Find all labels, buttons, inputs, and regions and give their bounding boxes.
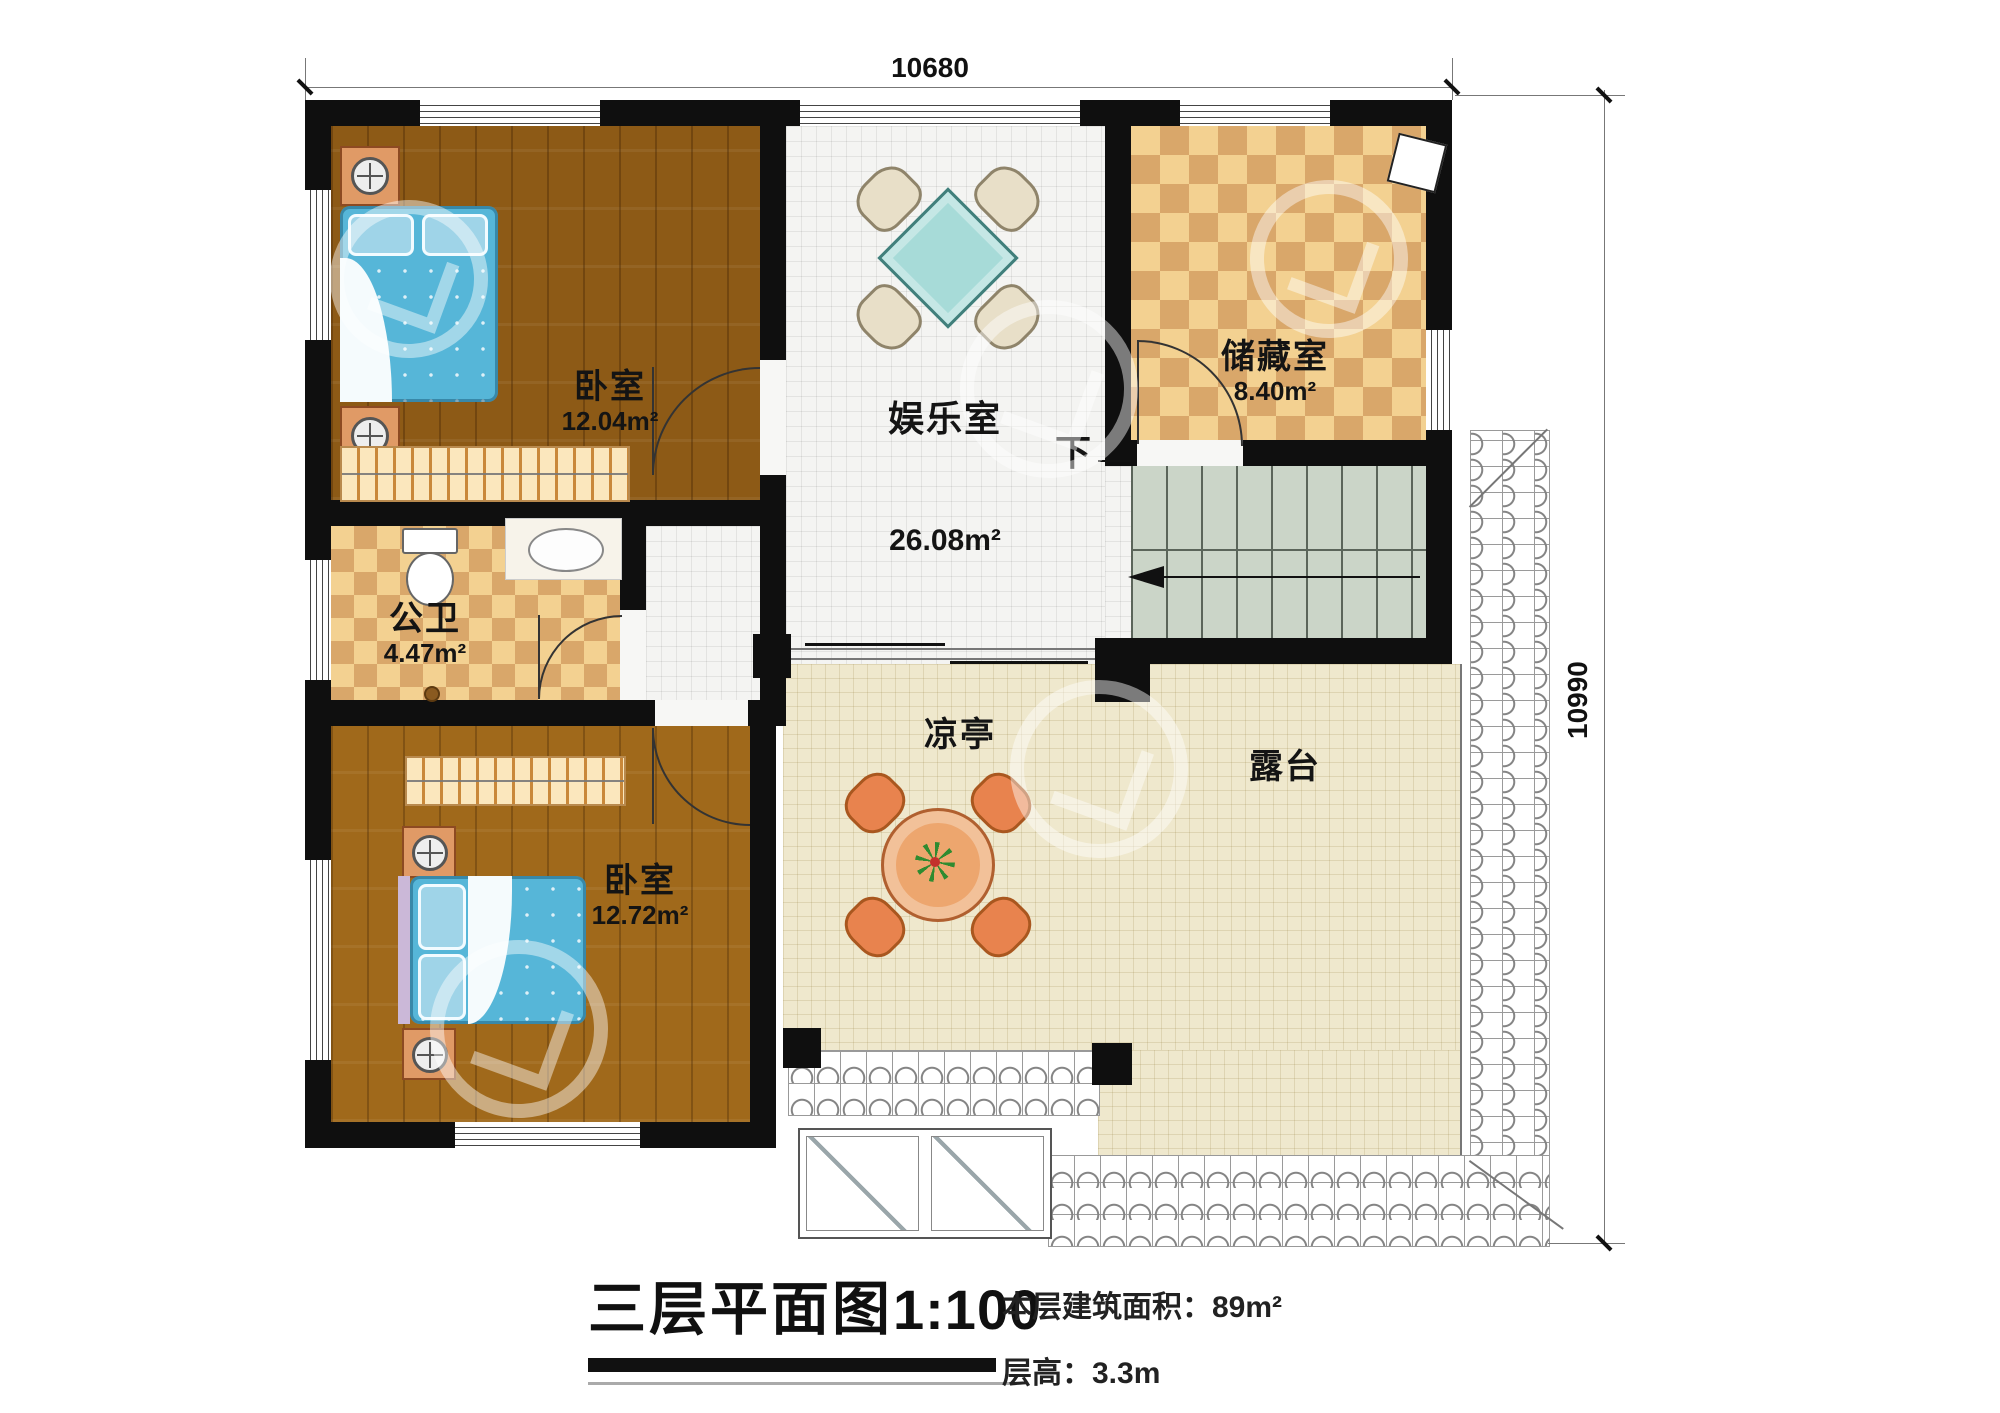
- dimension-line-right: [1604, 90, 1605, 1243]
- roof-tile-strip-pavilion: [788, 1050, 1100, 1116]
- bed-headboard: [398, 876, 410, 1024]
- window-top-bedroom: [420, 100, 600, 126]
- room-name: 露台: [1215, 748, 1355, 787]
- stairs-treads: [1131, 466, 1426, 638]
- wall-under-stairs: [1095, 638, 1452, 664]
- wall-bedroom-bottom-bottom-a: [305, 1122, 455, 1148]
- skylight-pane: [806, 1136, 919, 1231]
- room-name: 凉亭: [890, 716, 1030, 755]
- room-area: 12.72m²: [540, 901, 740, 931]
- room-label-terrace: 露台: [1215, 748, 1355, 787]
- stairs-direction-arrowhead: [1128, 566, 1164, 588]
- wardrobe: [405, 756, 626, 806]
- wall-bedroom-bottom-top-a: [305, 700, 655, 726]
- room-label-pavilion: 凉亭: [890, 716, 1030, 755]
- stairs-down-pointer: [1098, 460, 1131, 462]
- window-left-bedroom-top: [305, 190, 331, 340]
- dimension-ext: [1548, 1243, 1625, 1244]
- sliding-door-leaf: [805, 643, 945, 646]
- room-name: 储藏室: [1160, 338, 1390, 377]
- wall-bedroom-bottom-bottom-b: [640, 1122, 776, 1148]
- door-gap: [655, 700, 748, 726]
- roof-tile-band-right: [1470, 430, 1550, 1247]
- room-name: 卧室: [500, 368, 720, 407]
- room-name: 卧室: [540, 862, 740, 901]
- skylight-pane: [931, 1136, 1044, 1231]
- pillow: [418, 884, 466, 950]
- roof-tile-band-bottom: [1048, 1155, 1550, 1247]
- wall-storage-bottom-b: [1243, 440, 1452, 466]
- toilet-tank: [402, 528, 458, 554]
- exterior-sill-lines: [455, 1155, 640, 1179]
- pavilion-column-tl: [753, 634, 791, 678]
- stairs-direction-line: [1162, 576, 1420, 578]
- floor-area-text: 本层建筑面积：89m²: [1002, 1282, 1282, 1326]
- room-label-bathroom: 公卫 4.47m²: [350, 600, 500, 669]
- wardrobe: [340, 446, 630, 502]
- lamp-icon: [351, 157, 389, 195]
- dimension-ext: [1452, 58, 1453, 100]
- nightstand: [402, 826, 456, 878]
- room-label-bedroom-bottom: 卧室 12.72m²: [540, 862, 740, 931]
- pavilion-column-bl: [783, 1028, 821, 1068]
- wall-bedroom-top-right-b: [760, 475, 786, 726]
- sink: [528, 528, 604, 572]
- pavilion-column-br: [1092, 1043, 1132, 1085]
- room-name: 公卫: [350, 600, 500, 639]
- lamp-icon: [412, 835, 448, 871]
- window-top-entertainment: [800, 100, 1080, 126]
- wall-right-upper: [1426, 100, 1452, 330]
- door-gap: [760, 360, 786, 475]
- potted-plant: [915, 842, 955, 882]
- floor-drain: [424, 686, 440, 702]
- window-left-bedroom-bottom: [305, 860, 331, 1060]
- wall-bedroom-bottom-top-b: [748, 700, 786, 726]
- dimension-line-top: [305, 87, 1455, 88]
- door-leaf-bedroom-bottom: [652, 728, 654, 824]
- dimension-ext: [1455, 95, 1625, 96]
- stair-entry-floor: [1105, 466, 1131, 638]
- sliding-door-track: [791, 648, 1095, 650]
- terrace-floor-lower: [1098, 1050, 1462, 1160]
- room-area: 12.04m²: [500, 407, 720, 437]
- nightstand: [340, 146, 400, 206]
- window-left-bathroom: [305, 560, 331, 680]
- room-label-storage: 储藏室 8.40m²: [1160, 338, 1390, 407]
- room-area: 4.47m²: [350, 639, 500, 669]
- toilet-bowl: [406, 552, 454, 606]
- floor-plan: 下: [0, 0, 2000, 1413]
- drawing-title: 三层平面图1:100: [588, 1262, 1041, 1346]
- dimension-right-value: 10990: [1562, 620, 1594, 780]
- title-underline-thick: [588, 1358, 996, 1372]
- title-text: 三层平面图: [588, 1262, 893, 1346]
- dimension-top-value: 10680: [780, 52, 1080, 84]
- terrace-edge-right: [1460, 664, 1462, 1160]
- room-area: 8.40m²: [1160, 377, 1390, 407]
- room-label-entertainment-area: 26.08m²: [820, 524, 1070, 559]
- window-bedroom-bottom: [455, 1122, 640, 1148]
- wall-bathroom-right-a: [620, 526, 646, 610]
- room-area: 26.08m²: [820, 524, 1070, 559]
- sliding-door-leaf: [950, 661, 1088, 664]
- window-right-stairwell: [1426, 330, 1452, 430]
- skylight-window: [798, 1128, 1052, 1239]
- room-label-bedroom-top: 卧室 12.04m²: [500, 368, 720, 437]
- wall-bedroom-bottom-right: [750, 726, 776, 1148]
- corridor-floor: [646, 526, 760, 726]
- room-name: 娱乐室: [820, 398, 1070, 439]
- door-leaf-bathroom: [538, 615, 540, 697]
- room-label-entertainment-name: 娱乐室: [820, 398, 1070, 439]
- floor-height-text: 层高：3.3m: [1002, 1348, 1160, 1392]
- window-top-storage: [1180, 100, 1330, 126]
- door-gap: [620, 610, 646, 700]
- title-underline-thin: [588, 1382, 1012, 1385]
- sliding-door-track: [791, 658, 1095, 660]
- wall-bedroom-top-right-a: [760, 126, 786, 360]
- dimension-ext: [305, 58, 306, 100]
- stairs-center-rail: [1131, 549, 1426, 551]
